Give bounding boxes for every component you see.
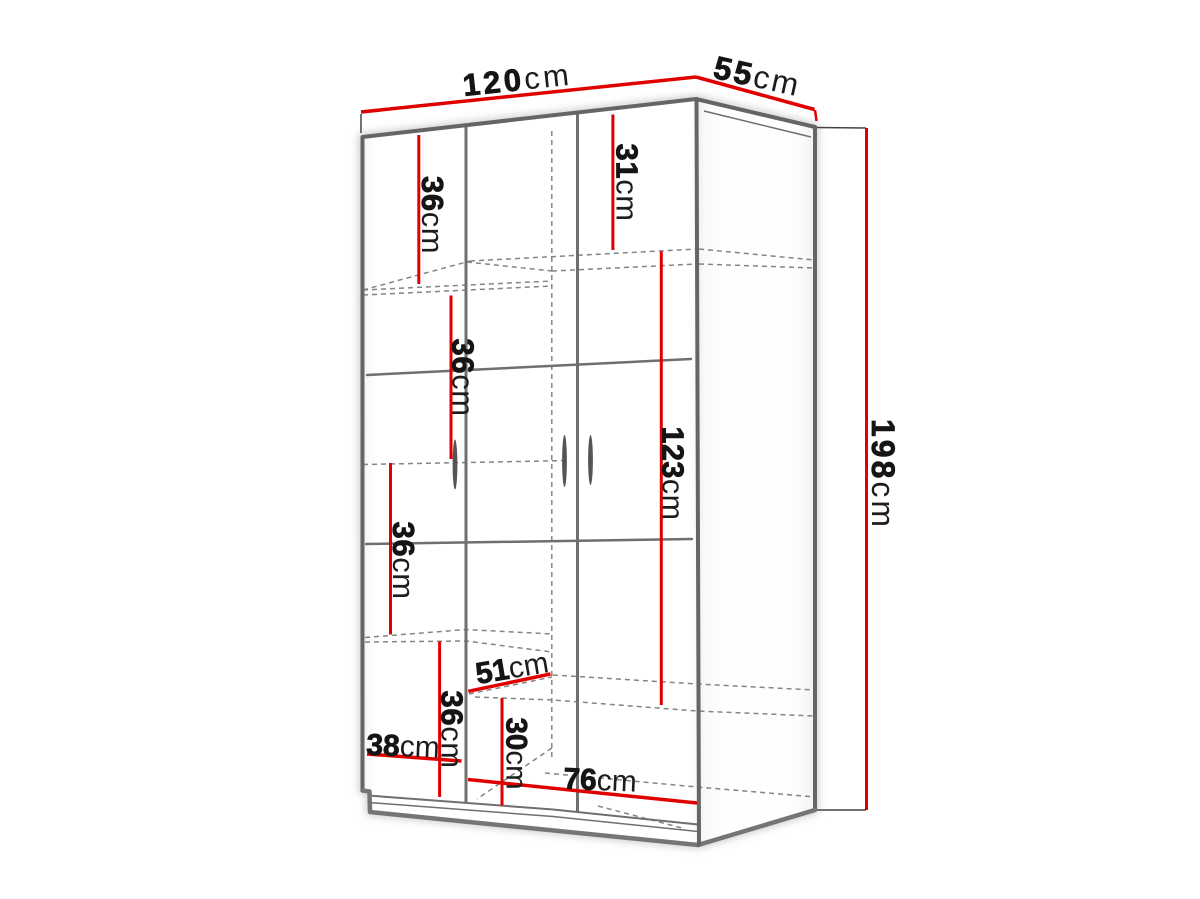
svg-text:36cm: 36cm [435,691,470,769]
svg-text:120cm: 120cm [461,57,574,103]
svg-text:38cm: 38cm [366,729,441,765]
svg-text:198cm: 198cm [865,419,901,530]
svg-text:36cm: 36cm [386,522,421,600]
svg-text:76cm: 76cm [563,763,638,799]
svg-text:31cm: 31cm [610,144,645,222]
svg-text:30cm: 30cm [500,718,533,790]
svg-text:36cm: 36cm [446,339,481,417]
svg-text:36cm: 36cm [415,176,450,254]
svg-text:123cm: 123cm [656,427,690,521]
